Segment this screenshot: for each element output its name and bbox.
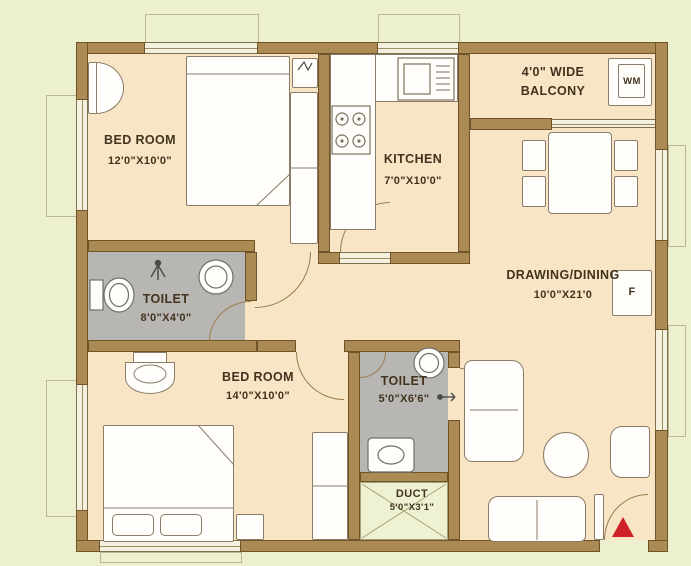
wall <box>318 252 340 264</box>
dressing-table-mirror <box>125 362 175 394</box>
wall <box>360 472 448 482</box>
entry-arrow <box>612 517 634 537</box>
bay-window <box>100 552 242 563</box>
bay-window <box>378 14 460 44</box>
coffee-table <box>543 432 589 478</box>
wall <box>655 430 668 552</box>
armchair <box>610 426 650 478</box>
wall <box>257 340 296 352</box>
wall <box>257 42 378 54</box>
wall <box>655 42 668 150</box>
drawing-dining-label: DRAWING/DINING <box>506 269 619 282</box>
pillow <box>112 514 154 536</box>
bay-window <box>668 145 686 247</box>
wall <box>318 54 330 252</box>
dining-table <box>548 132 612 214</box>
wall <box>448 420 460 540</box>
wall <box>458 54 470 252</box>
floor-plan: WM F <box>0 0 691 566</box>
bay-window <box>145 14 259 44</box>
dining-chair <box>522 140 546 171</box>
night-stand <box>292 58 318 88</box>
bedroom2-dims: 14'0"X10'0" <box>226 391 290 402</box>
kitchen-dims: 7'0"X10'0" <box>384 176 442 187</box>
dining-chair <box>614 176 638 207</box>
wall <box>76 210 88 385</box>
wardrobe <box>312 432 348 540</box>
sofa <box>464 360 524 462</box>
night-stand <box>236 514 264 540</box>
toilet1-dims: 8'0"X4'0" <box>140 313 191 324</box>
bedroom1-label: BED ROOM <box>104 134 176 147</box>
window <box>655 150 668 240</box>
window <box>76 385 88 510</box>
window <box>145 42 257 54</box>
balcony-label-line2: BALCONY <box>521 85 586 98</box>
wall <box>76 42 88 100</box>
wall <box>648 540 668 552</box>
wall <box>344 340 460 352</box>
bay-window <box>46 95 78 217</box>
kitchen-label: KITCHEN <box>384 153 442 166</box>
duct-label: DUCT <box>396 489 428 500</box>
toilet2-dims: 5'0"X6'6" <box>378 394 429 405</box>
window <box>378 42 458 54</box>
fridge-label: F <box>628 287 635 298</box>
wardrobe <box>290 92 318 244</box>
wall <box>655 240 668 330</box>
wall <box>348 352 360 540</box>
bay-window <box>46 380 78 517</box>
dining-chair <box>614 140 638 171</box>
wall <box>470 118 552 130</box>
wall <box>458 42 668 54</box>
window <box>76 100 88 210</box>
kitchen-door-leaf <box>340 252 390 264</box>
wall <box>88 340 257 352</box>
balcony-slider-window <box>552 119 655 128</box>
bed <box>186 56 290 206</box>
kitchen-counter <box>330 54 376 230</box>
bedroom2-label: BED ROOM <box>222 371 294 384</box>
wall <box>76 540 100 552</box>
drawing-dining-dims: 10'0"X21'0 <box>534 290 593 301</box>
wall <box>390 252 470 264</box>
window <box>655 330 668 430</box>
toilet1-label: TOILET <box>143 293 190 306</box>
wall <box>448 352 460 368</box>
pillow <box>160 514 202 536</box>
entry-door-leaf <box>594 494 604 540</box>
toilet2-label: TOILET <box>381 375 428 388</box>
washing-machine-label: WM <box>623 77 641 87</box>
bay-window <box>668 325 686 437</box>
duct-dims: 5'0"X3'1" <box>390 503 435 513</box>
sofa <box>488 496 586 542</box>
bedroom1-dims: 12'0"X10'0" <box>108 156 172 167</box>
dining-chair <box>522 176 546 207</box>
balcony-label-line1: 4'0" WIDE <box>522 66 585 79</box>
wall <box>88 240 255 252</box>
